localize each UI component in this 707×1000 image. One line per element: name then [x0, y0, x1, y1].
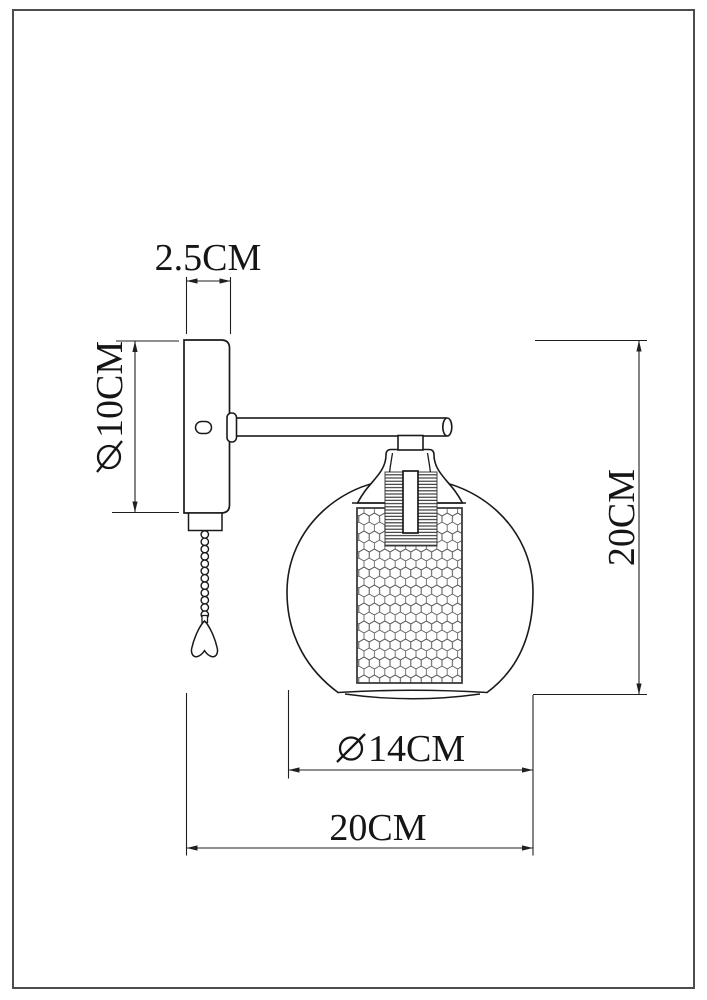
dimension-label-overall-height: 20CM: [601, 469, 643, 566]
arrowhead-right: [220, 278, 231, 283]
arm-wall-flange: [227, 413, 237, 442]
dimension-label-plate-height: 10CM: [89, 341, 131, 438]
arrowhead-bottom: [132, 502, 137, 513]
globe-bottom-rim: [345, 694, 480, 699]
drawing-page: 2.5CM 10CM 20CM: [0, 0, 707, 1000]
diameter-symbol: [337, 734, 365, 762]
dimension-label-overall-width: 20CM: [329, 807, 426, 849]
socket-neck: [398, 436, 423, 451]
dimension-drawing: 2.5CM 10CM 20CM: [0, 0, 707, 1000]
arrowhead-left: [187, 278, 198, 283]
arm-end-cap: [443, 418, 452, 436]
dimension-overall-width: 20CM: [187, 693, 534, 856]
arrowhead-left: [187, 845, 198, 850]
ball-pull-chain: [191, 531, 217, 657]
threaded-socket: [385, 471, 437, 546]
mount-plate-cap: [189, 513, 223, 531]
dimension-label-plate-width: 2.5CM: [155, 237, 262, 279]
mounting-arm: [236, 418, 446, 436]
switch-button: [196, 422, 212, 434]
dimension-overall-height: 20CM: [533, 341, 647, 695]
arrowhead-right: [522, 767, 533, 772]
arrowhead-top: [636, 341, 641, 352]
arrowhead-top: [132, 341, 137, 352]
arrowhead-right: [522, 845, 533, 850]
dimension-plate-height: 10CM: [89, 341, 179, 513]
diameter-symbol: [97, 441, 122, 472]
dimension-plate-width: 2.5CM: [155, 237, 262, 334]
arrowhead-bottom: [636, 684, 641, 695]
arrowhead-left: [289, 767, 300, 772]
socket-center-slot: [403, 471, 418, 533]
wall-mount-plate: [184, 340, 230, 531]
dimension-label-globe-diameter: 14CM: [368, 728, 465, 770]
chain-pull-tassel: [191, 621, 217, 657]
